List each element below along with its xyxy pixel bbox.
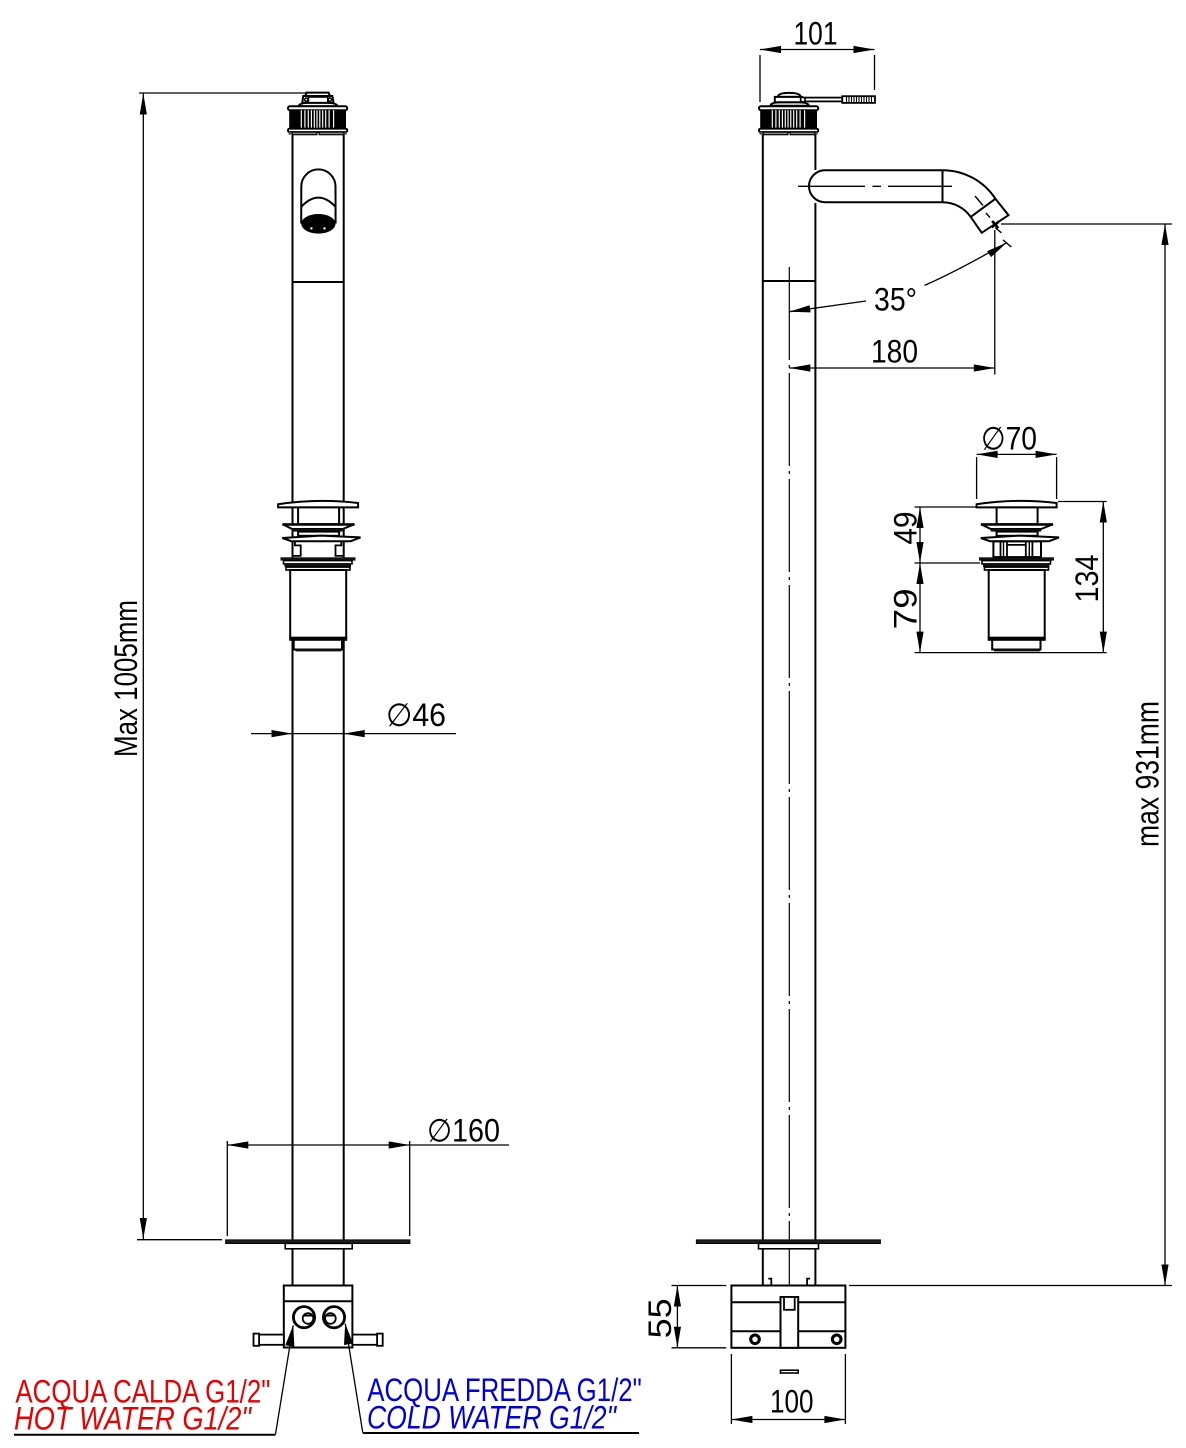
svg-text:101: 101 (794, 16, 838, 52)
svg-text:Max 1005mm: Max 1005mm (108, 600, 144, 757)
svg-text:134: 134 (1069, 555, 1105, 603)
svg-text:∅46: ∅46 (386, 697, 446, 733)
svg-text:35°: 35° (874, 282, 917, 318)
svg-text:49: 49 (888, 512, 924, 545)
svg-text:HOT WATER G1/2": HOT WATER G1/2" (14, 1401, 252, 1437)
svg-text:COLD WATER G1/2": COLD WATER G1/2" (367, 1399, 617, 1435)
svg-text:100: 100 (770, 1383, 814, 1419)
svg-text:max 931mm: max 931mm (1130, 701, 1166, 847)
svg-text:55: 55 (642, 1298, 678, 1338)
svg-text:180: 180 (871, 334, 918, 370)
svg-text:∅160: ∅160 (427, 1113, 500, 1149)
svg-text:∅70: ∅70 (981, 421, 1037, 457)
svg-text:79: 79 (888, 588, 924, 629)
